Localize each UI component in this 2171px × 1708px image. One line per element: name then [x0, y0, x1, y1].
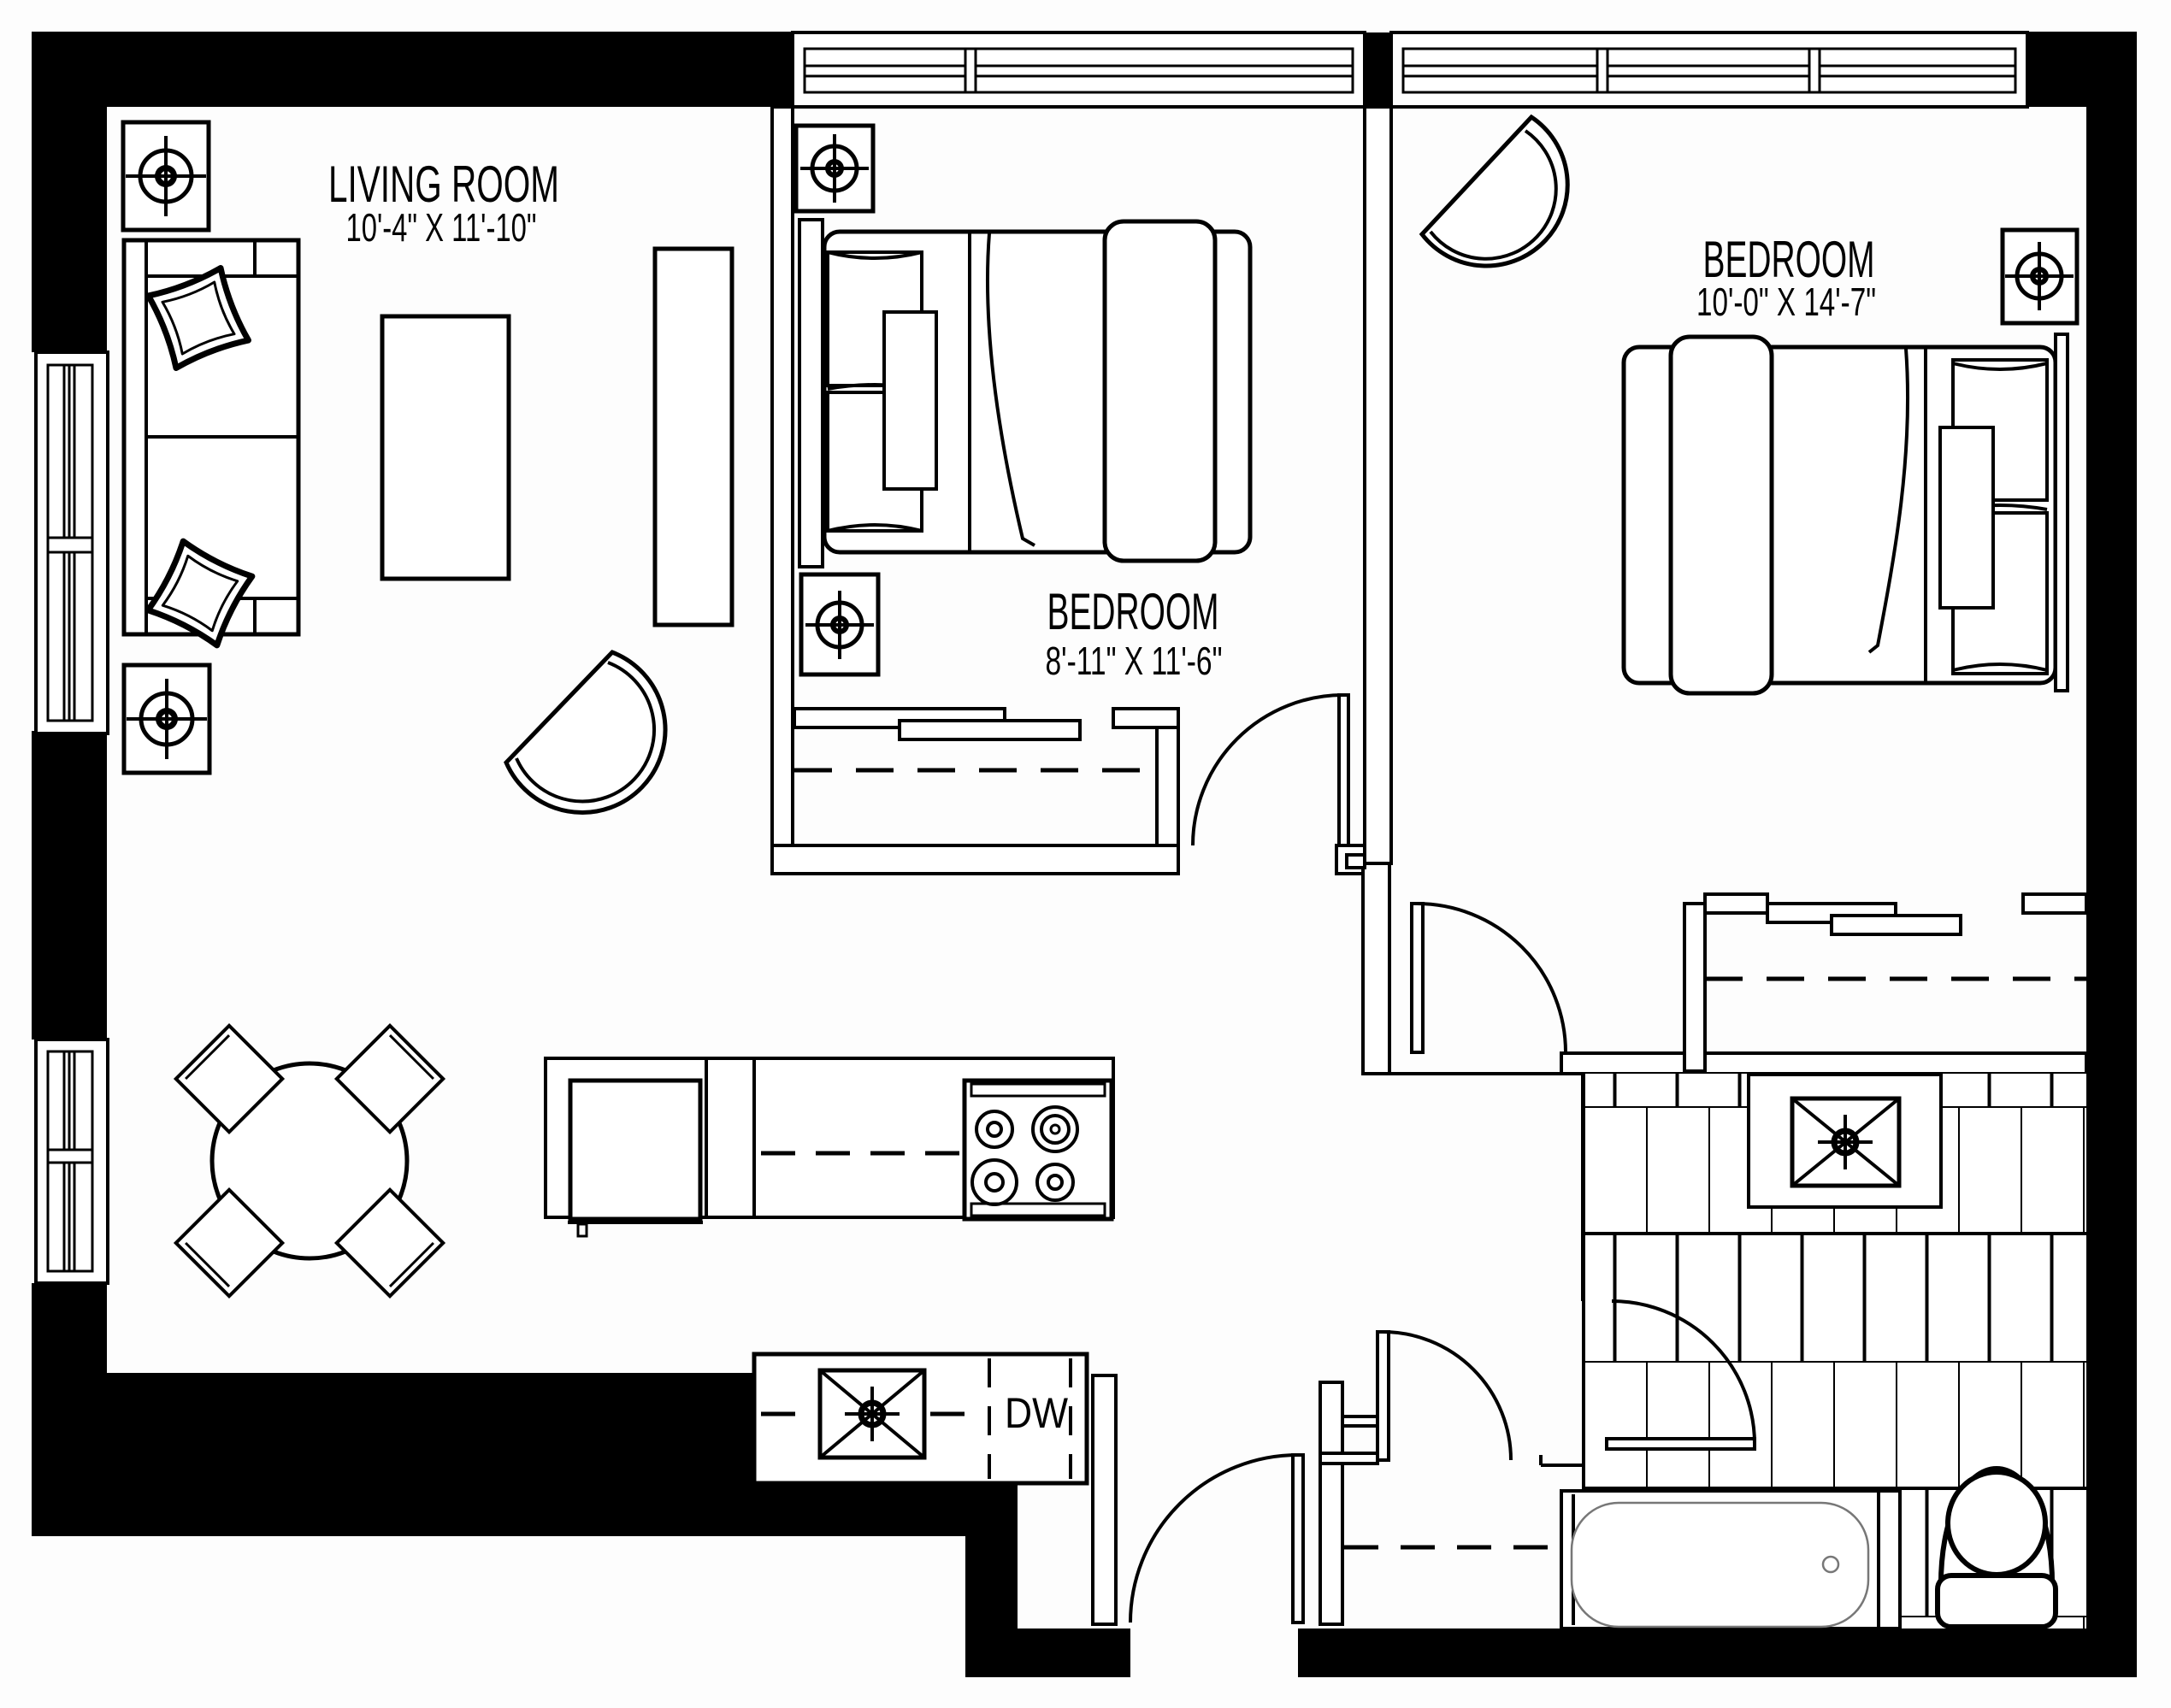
svg-text:LIVING ROOM: LIVING ROOM — [328, 156, 559, 213]
svg-text:BEDROOM: BEDROOM — [1047, 583, 1219, 640]
svg-text:DW: DW — [1005, 1389, 1069, 1437]
svg-text:10'-0" X 14'-7": 10'-0" X 14'-7" — [1696, 280, 1876, 324]
svg-text:8'-11" X 11'-6": 8'-11" X 11'-6" — [1046, 639, 1223, 683]
svg-text:10'-4" X 11'-10": 10'-4" X 11'-10" — [346, 205, 537, 250]
